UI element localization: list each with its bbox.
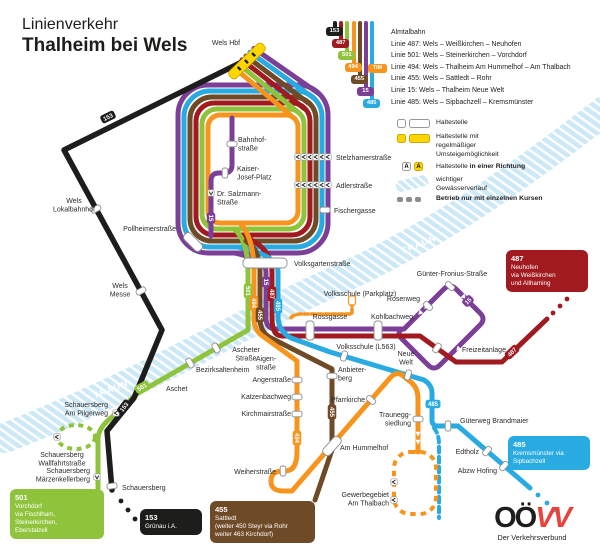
terminus-box-501: 501Vorchdorf via Fischlham, Steinerkirch… xyxy=(10,489,104,539)
label-bezirksaltenheim: Bezirksaltenheim xyxy=(196,367,249,374)
stop-angerstrasse xyxy=(292,377,302,383)
svg-text:487: 487 xyxy=(268,289,274,300)
label-wels-messe: WelsMesse xyxy=(110,283,131,298)
label-volksschule-l563: Volksschule (L563) xyxy=(336,344,395,351)
stop-symbol-square xyxy=(397,119,406,128)
label-freizeitanlage: Freizeitanlage xyxy=(462,347,506,354)
interchange-symbol-pill xyxy=(409,134,430,143)
legend-betrieb: Betrieb nur mit einzelnen Kursen xyxy=(436,195,543,204)
label-gewerbegebiet: GewerbegebietAm Thalbach xyxy=(342,492,390,507)
label-schauersberg: Schauersberg xyxy=(122,485,166,492)
oneway-symbol-a2: A xyxy=(414,162,423,171)
interchange-symbol-square xyxy=(397,134,406,143)
label-ascheter-strasse: AscheterStraße xyxy=(232,347,260,362)
legend-umsteige: Haltestelle mit regelmäßiger Umsteigemög… xyxy=(436,133,499,159)
legend-gewaesser: wichtiger Gewässerverlauf xyxy=(436,176,487,194)
sparse-dot-3 xyxy=(415,197,421,202)
oovv-logo: OÖVV Der Verkehrsverbund xyxy=(486,504,578,542)
svg-text:15: 15 xyxy=(262,279,268,286)
label-guenter-fronius: Günter-Fronius-Straße xyxy=(417,271,488,278)
label-rossgasse: Rossgasse xyxy=(313,314,348,321)
label-neue-welt: NeueWelt xyxy=(398,351,415,366)
stop-volksgartenstrasse xyxy=(243,258,287,268)
label-angerstrasse: Angerstraße xyxy=(252,377,291,384)
svg-text:501: 501 xyxy=(244,286,250,297)
label-aschet: Aschet xyxy=(166,386,187,393)
line-485-dashed xyxy=(434,428,439,518)
stop-traunegg xyxy=(413,416,423,422)
logo-oo: OÖ xyxy=(494,502,535,534)
label-pfarrkirche: Pfarrkirche xyxy=(331,397,365,404)
sparse-dot-1 xyxy=(397,197,403,202)
stop-anbieterberg xyxy=(327,373,337,379)
label-kirchmairstrasse: Kirchmairstraße xyxy=(242,411,292,418)
oneway-symbol-a1: A xyxy=(402,162,411,171)
label-anbieterberg: Anbieter-berg xyxy=(338,367,367,382)
label-rosenweg: Rosenweg xyxy=(387,296,420,303)
terminus-box-455: 455Sattledt (weiter 450 Steyr via Rohr w… xyxy=(210,501,315,543)
legend-haltestelle: Haltestelle xyxy=(436,119,468,128)
label-kohlbachweg: Kohlbachweg xyxy=(371,314,413,321)
stop-kohlbachweg xyxy=(374,321,382,340)
label-edtholz: Edtholz xyxy=(456,449,480,456)
stop-volksschule-l563 xyxy=(340,350,348,361)
svg-text:494: 494 xyxy=(250,298,256,309)
stop-weiherstrasse xyxy=(280,466,286,476)
label-wallfahrtstrasse: SchauersbergWallfahrtstraße xyxy=(38,452,85,467)
label-volksgartenstrasse: Volksgartenstraße xyxy=(294,261,351,268)
legend-richtung: Haltestelle in einer Richtung xyxy=(436,163,525,172)
stop-gewerbegebiet-1 xyxy=(391,479,397,485)
label-volksschule-parkplatz: Volksschule (Parkplatz) xyxy=(324,291,397,298)
label-traunegg: Traunegg-siedlung xyxy=(379,412,412,427)
stop-wallfahrtstrasse xyxy=(54,434,60,440)
terminus-box-485: 485Kremsmünster via Sipbachzell xyxy=(508,436,590,470)
svg-text:455: 455 xyxy=(328,407,334,418)
stop-gueterweg xyxy=(445,421,451,431)
label-katzenbachweg: Katzenbachweg xyxy=(241,394,291,401)
label-weiherstrasse: Weiherstraße xyxy=(234,469,276,476)
stop-maerzenkellerberg xyxy=(94,474,100,480)
svg-text:455: 455 xyxy=(256,310,262,321)
label-am-pilgerweg: SchauersbergAm Pilgerweg xyxy=(64,402,108,417)
stop-symbol-pill xyxy=(409,119,430,128)
label-am-hummelhof: Am Hummelhof xyxy=(340,445,388,452)
terminus-box-153: 153Grünau i.A. xyxy=(140,509,202,535)
legend-symbols: Haltestelle Haltestelle mit regelmäßiger… xyxy=(0,0,600,220)
svg-text:494: 494 xyxy=(293,433,299,444)
river-symbol xyxy=(395,174,429,192)
label-abzw-hofing: Abzw Hofing xyxy=(458,468,497,475)
logo-subtitle: Der Verkehrsverbund xyxy=(486,533,578,542)
label-aigenstrasse: Aigen-straße xyxy=(256,356,277,371)
label-maerzenkellerberg: SchauersbergMärzenkellerberg xyxy=(36,468,90,483)
label-gueterweg: Güterweg Brandmaier xyxy=(460,418,529,425)
svg-text:485: 485 xyxy=(274,301,280,312)
label-pollheimerstrasse: Pollheimerstraße xyxy=(123,226,176,233)
sparse-dot-2 xyxy=(406,197,412,202)
stop-katzenbachweg xyxy=(292,394,302,400)
stop-schauersberg xyxy=(107,483,118,490)
line-501-wallfahrt-loop xyxy=(57,425,95,449)
terminus-box-487: 487Neuhofen via Weißkirchen und Allhamin… xyxy=(506,250,588,292)
logo-vv: VV xyxy=(535,502,570,534)
stop-kirchmairstrasse xyxy=(292,411,302,417)
svg-text:485: 485 xyxy=(428,402,439,408)
stop-rossgasse xyxy=(306,321,314,340)
stop-gewerbegebiet-2 xyxy=(391,497,397,503)
line-494-thalbach-loop xyxy=(394,452,436,514)
